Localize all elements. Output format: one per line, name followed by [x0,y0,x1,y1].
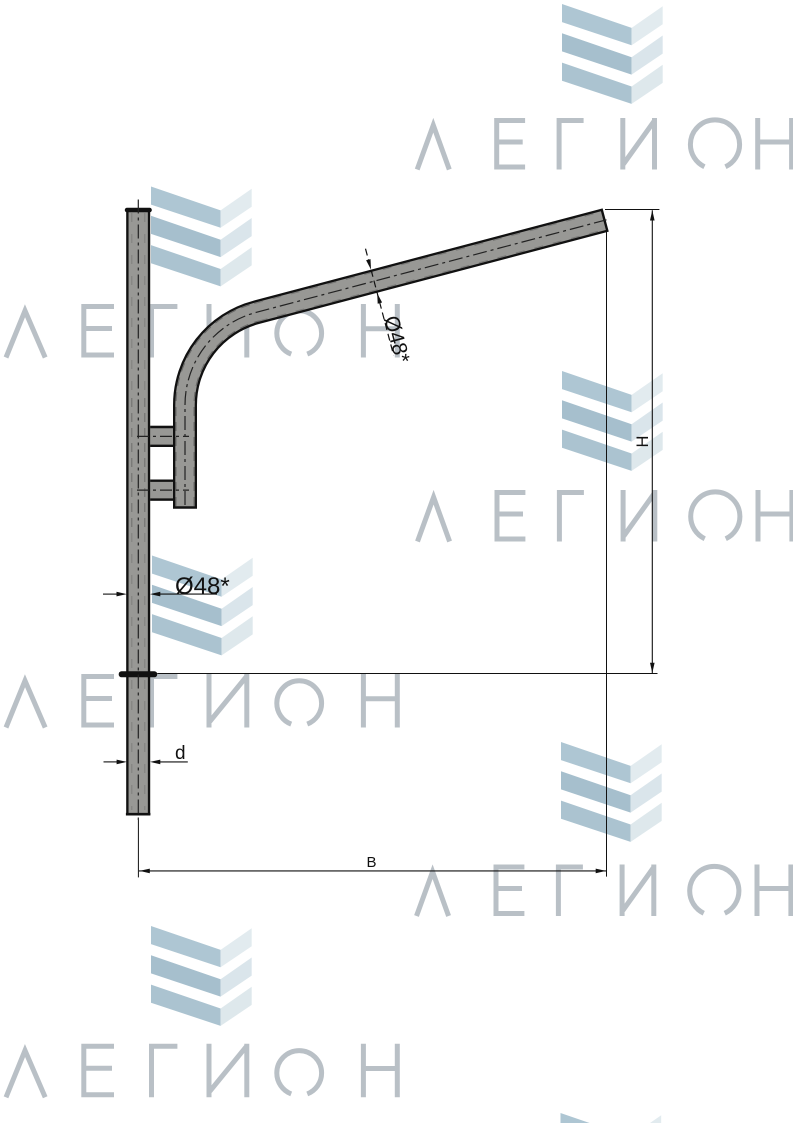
svg-text:B: B [367,854,377,871]
svg-text:Ø48*: Ø48* [175,573,230,600]
svg-text:H: H [634,436,652,448]
svg-text:d: d [175,743,186,764]
